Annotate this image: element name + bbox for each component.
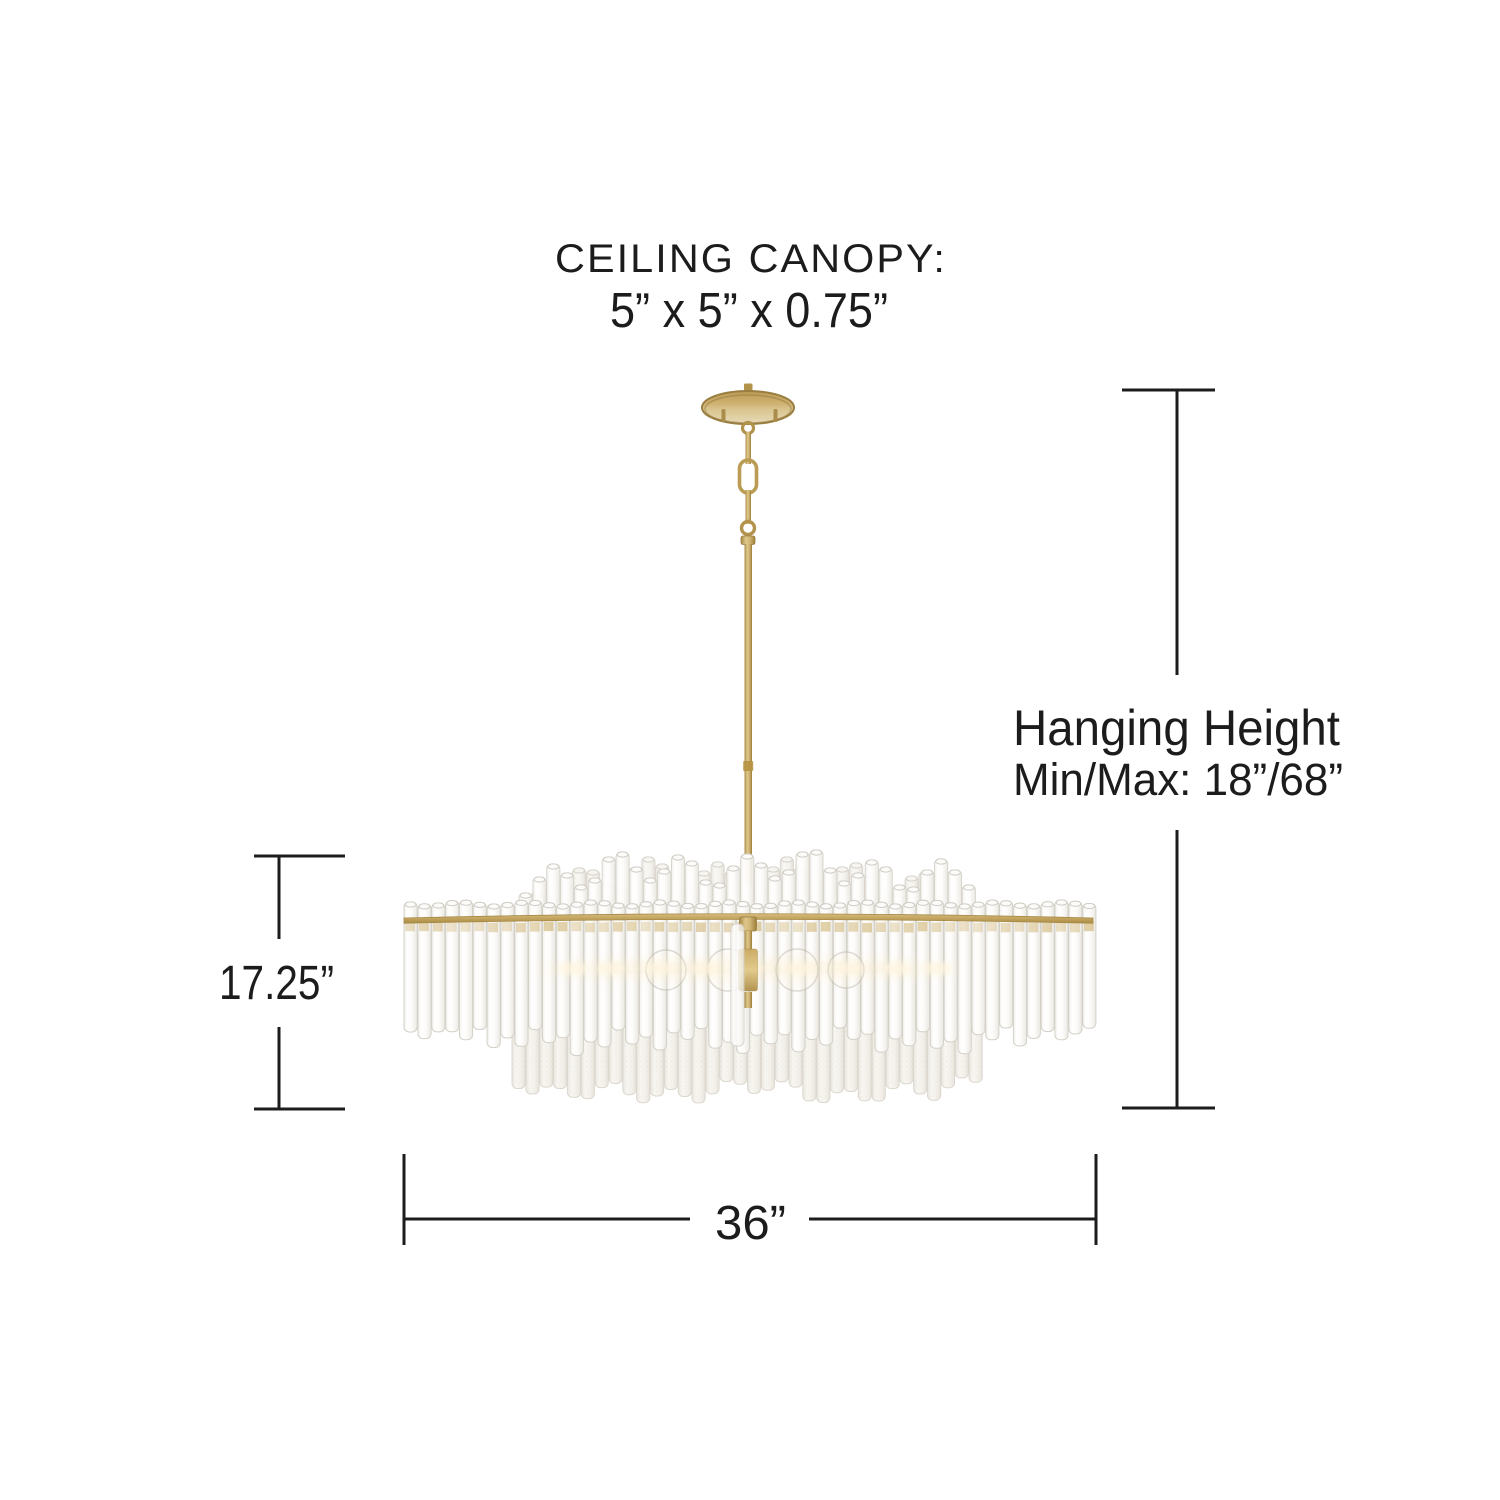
svg-text:36”: 36” xyxy=(715,1197,786,1250)
svg-text:17.25”: 17.25” xyxy=(219,957,334,1010)
svg-text:Hanging Height: Hanging Height xyxy=(1013,700,1340,756)
svg-text:Min/Max: 18”/68”: Min/Max: 18”/68” xyxy=(1013,754,1343,805)
svg-text:CEILING CANOPY:: CEILING CANOPY: xyxy=(555,237,947,281)
svg-text:5” x 5” x 0.75”: 5” x 5” x 0.75” xyxy=(610,284,888,338)
